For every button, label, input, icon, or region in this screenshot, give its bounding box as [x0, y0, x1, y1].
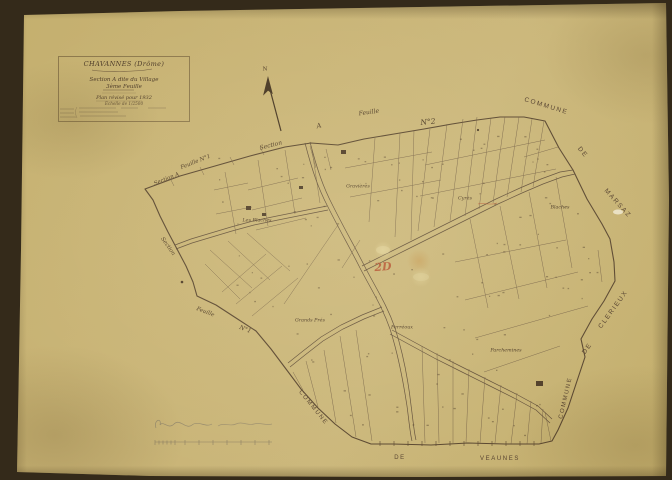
- damage-spots: [376, 210, 623, 282]
- north-arrow-label: N: [263, 67, 268, 73]
- roads: [175, 142, 575, 441]
- parcel-number-specks: [218, 136, 598, 436]
- section-boundary: [145, 117, 615, 445]
- parcel-lines: [170, 117, 602, 444]
- lieu-dit-ferreoux: Ferréoux: [391, 327, 413, 332]
- title-commune: CHAVANNES (Drôme): [84, 61, 165, 68]
- red-mark-2d: 2D: [374, 261, 392, 273]
- scanned-map-photo: { "colors": {"paper":"#c8b374","ink":"#5…: [0, 0, 672, 480]
- commune-veaunes-word3: VEAUNES: [480, 456, 520, 462]
- lieu-dit-blaches: Blaches: [551, 207, 570, 212]
- commune-veaunes-word2: DE: [394, 455, 406, 461]
- map-sheet: CHAVANNES (Drôme) Section A dite du Vill…: [0, 0, 672, 480]
- title-sheet-number: 3ème Feuille: [106, 85, 142, 91]
- title-block: CHAVANNES (Drôme) Section A dite du Vill…: [58, 56, 190, 122]
- lieu-dit-gravieres: Gravières: [346, 186, 370, 191]
- lieu-dit-les-blaches: Les Blaches: [242, 220, 271, 225]
- title-scale: Échelle de 1/2500: [105, 102, 143, 106]
- buildings: [181, 129, 543, 386]
- lieu-dit-parchemines: Parchemines: [490, 350, 521, 355]
- adjacent-sheet-top-number: N°2: [420, 117, 436, 126]
- scale-bar: [155, 440, 272, 445]
- lieu-dit-grands-pres: Grands Prés: [295, 320, 325, 325]
- title-section: Section A dite du Village: [90, 78, 159, 84]
- lieu-dit-cyres: Cyrès: [458, 198, 472, 203]
- adjacent-sheet-top-a: A: [316, 122, 322, 129]
- north-arrow: [264, 78, 281, 131]
- pencil-annotation: [155, 420, 272, 428]
